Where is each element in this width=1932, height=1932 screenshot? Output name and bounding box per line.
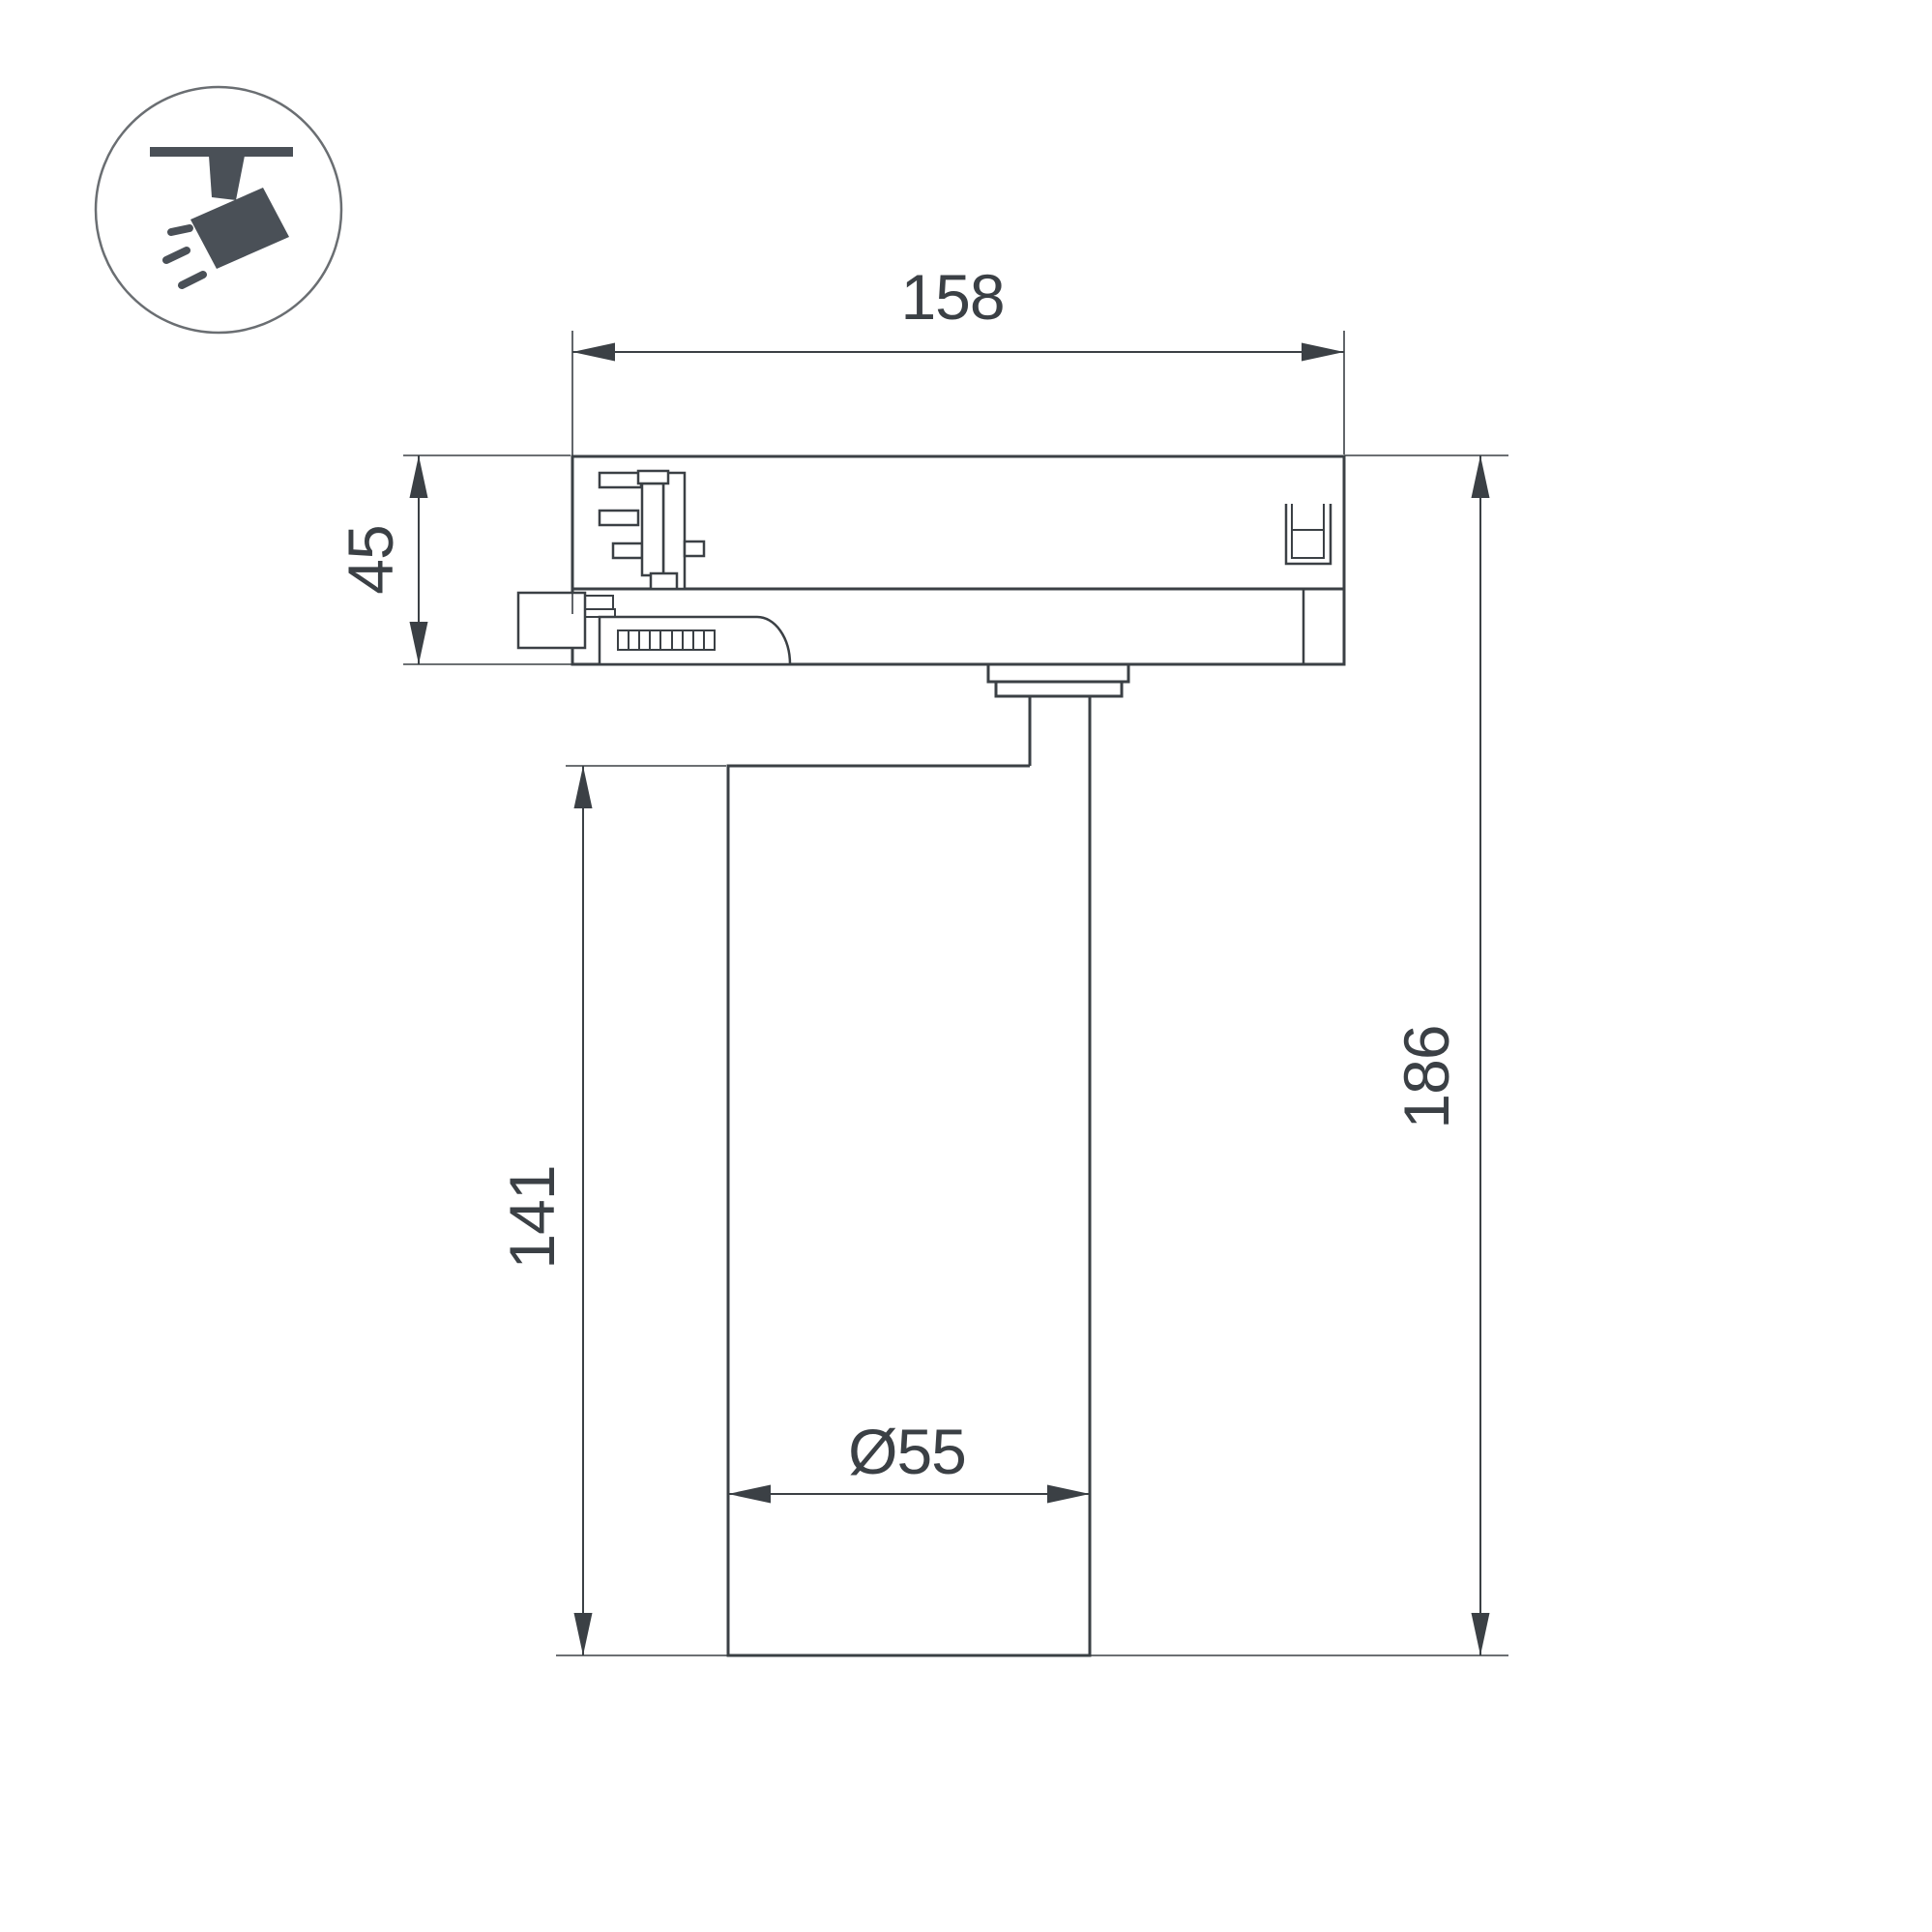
neck-flange-lower [996,682,1122,696]
dimension-label-186: 186 [1390,1025,1462,1128]
dimension-label-158: 158 [900,261,1004,333]
drawing-canvas: 158 45 141 186 [0,0,1932,1932]
track-spotlight-icon [96,87,341,333]
dimension-label-45: 45 [335,525,406,594]
neck-flange-upper [988,664,1128,682]
swivel-neck [988,664,1128,766]
dimension-label-d55: Ø55 [848,1416,966,1487]
technical-drawing: 158 45 141 186 [0,0,1932,1932]
icon-stem [209,156,245,200]
track-adapter [518,456,1344,664]
lamp-cylinder-body [728,766,1090,1655]
icon-light-rays [166,228,203,285]
adapter-slider-housing [600,617,790,664]
dimension-label-141: 141 [496,1165,568,1269]
icon-track-bar [150,147,293,157]
dimension-body-height: 141 [496,766,726,1655]
icon-lamp-head [190,188,289,269]
